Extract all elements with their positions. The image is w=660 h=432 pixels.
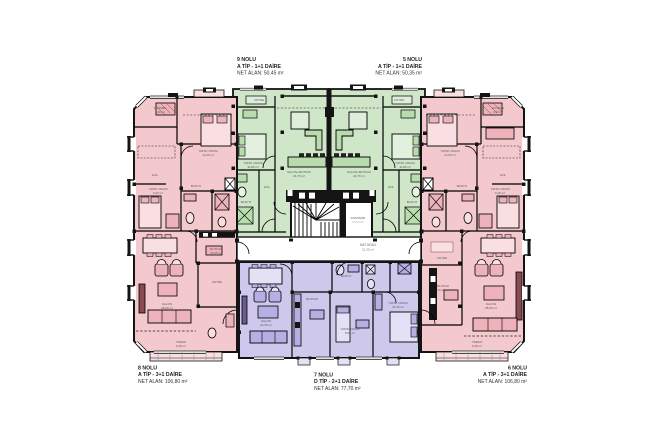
svg-text:28,60 m²: 28,60 m²: [161, 306, 173, 310]
svg-text:24,35 m²: 24,35 m²: [260, 323, 272, 327]
svg-text:11,80 m²: 11,80 m²: [247, 165, 259, 169]
svg-text:HOL: HOL: [500, 173, 507, 177]
svg-text:5 NOLU: 5 NOLU: [403, 57, 422, 63]
svg-text:9 NOLU: 9 NOLU: [237, 57, 256, 63]
svg-text:A TİP - 3+1 DAİRE: A TİP - 3+1 DAİRE: [483, 371, 528, 378]
svg-text:NET ALAN: 50,35 m²: NET ALAN: 50,35 m²: [375, 71, 422, 77]
svg-text:NET ALAN: 106,80 m²: NET ALAN: 106,80 m²: [138, 379, 188, 385]
svg-text:8 NOLU: 8 NOLU: [138, 366, 157, 372]
svg-text:7 NOLU: 7 NOLU: [314, 373, 333, 379]
svg-text:ANTRE: ANTRE: [394, 98, 404, 102]
svg-text:ANTRE: ANTRE: [212, 280, 222, 284]
svg-text:BANYO: BANYO: [341, 274, 352, 278]
svg-text:9,35 m²: 9,35 m²: [472, 344, 482, 348]
svg-text:24,70 m²: 24,70 m²: [353, 174, 365, 178]
svg-text:KAT HOLÜ: KAT HOLÜ: [360, 243, 376, 247]
svg-text:NET ALAN: 77,70 m²: NET ALAN: 77,70 m²: [314, 386, 361, 392]
svg-text:ASANSÖR: ASANSÖR: [351, 216, 367, 220]
svg-text:A TİP - 1+1 DAİRE: A TİP - 1+1 DAİRE: [378, 63, 423, 70]
svg-text:12,60 m²: 12,60 m²: [202, 153, 214, 157]
svg-text:9,40 m²: 9,40 m²: [495, 191, 505, 195]
svg-text:BANYO: BANYO: [191, 184, 202, 188]
svg-text:BANYO: BANYO: [457, 184, 468, 188]
svg-text:BANYO: BANYO: [241, 200, 252, 204]
svg-text:28,60 m²: 28,60 m²: [485, 306, 497, 310]
svg-text:10,25 m²: 10,25 m²: [210, 251, 222, 255]
svg-text:HOL: HOL: [152, 173, 159, 177]
svg-text:11,80 m²: 11,80 m²: [399, 165, 411, 169]
svg-text:9,40 m²: 9,40 m²: [153, 191, 163, 195]
svg-text:ANTRE: ANTRE: [254, 98, 264, 102]
svg-text:ANTRE: ANTRE: [437, 256, 447, 260]
svg-text:24,70 m²: 24,70 m²: [293, 174, 305, 178]
svg-text:21,35 m²: 21,35 m²: [362, 248, 374, 252]
svg-text:12,15 m²: 12,15 m²: [392, 305, 404, 309]
svg-text:9,35 m²: 9,35 m²: [176, 344, 186, 348]
svg-text:HOL: HOL: [264, 185, 271, 189]
svg-text:MUTFAK: MUTFAK: [306, 297, 318, 301]
svg-text:10,25 m²: 10,25 m²: [437, 288, 449, 292]
svg-text:A TİP - 1+1 DAİRE: A TİP - 1+1 DAİRE: [237, 63, 282, 70]
svg-text:NET ALAN: 50,45 m²: NET ALAN: 50,45 m²: [237, 71, 284, 77]
svg-text:A TİP - 3+1 DAİRE: A TİP - 3+1 DAİRE: [138, 371, 183, 378]
svg-text:D TİP - 2+1 DAİRE: D TİP - 2+1 DAİRE: [314, 378, 359, 385]
svg-text:NET ALAN: 106,80 m²: NET ALAN: 106,80 m²: [478, 379, 528, 385]
svg-text:HOL: HOL: [388, 185, 395, 189]
svg-text:BANYO: BANYO: [407, 200, 418, 204]
svg-text:8,90 m²: 8,90 m²: [345, 331, 355, 335]
svg-text:6 NOLU: 6 NOLU: [508, 366, 527, 372]
svg-text:12,60 m²: 12,60 m²: [444, 153, 456, 157]
